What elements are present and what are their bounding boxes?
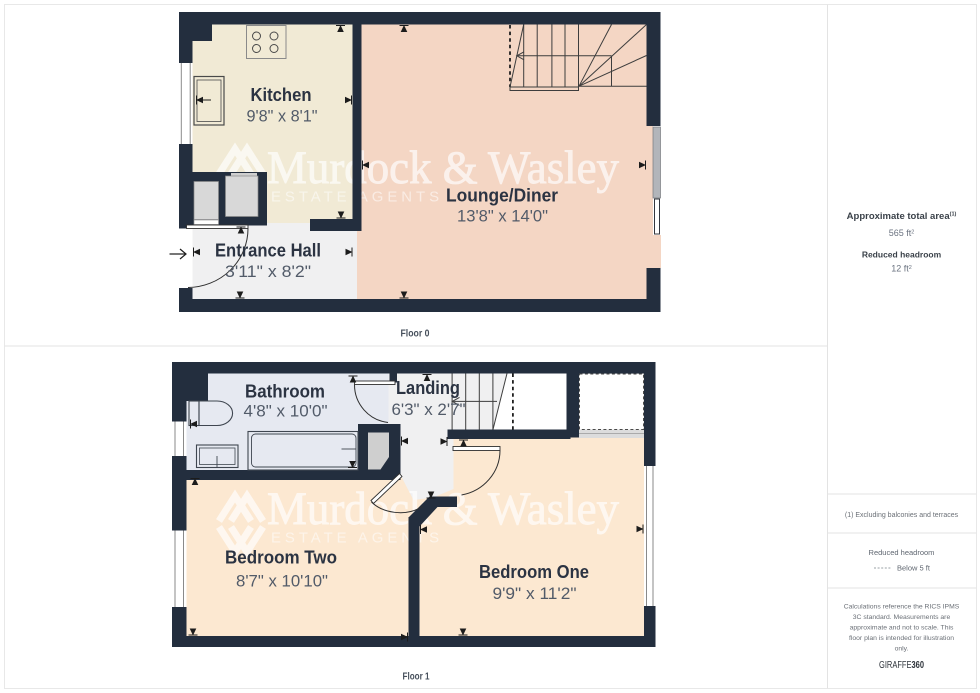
svg-text:Entrance Hall: Entrance Hall — [215, 241, 321, 261]
svg-text:12 ft2: 12 ft2 — [891, 264, 912, 274]
svg-text:9'9" x 11'2": 9'9" x 11'2" — [493, 585, 577, 603]
svg-text:(1) Excluding balconies and te: (1) Excluding balconies and terraces — [845, 512, 959, 519]
svg-text:Murdock & Wasley: Murdock & Wasley — [267, 142, 619, 194]
svg-text:Calculations reference the RIC: Calculations reference the RICS IPMS — [844, 604, 960, 611]
svg-text:565 ft2: 565 ft2 — [889, 228, 915, 238]
svg-text:3'11" x 8'2": 3'11" x 8'2" — [225, 263, 311, 281]
svg-text:Lounge/Diner: Lounge/Diner — [446, 186, 558, 206]
svg-text:Murdock & Wasley: Murdock & Wasley — [267, 483, 619, 535]
svg-text:Bedroom Two: Bedroom Two — [225, 548, 337, 568]
svg-text:Approximate total area(1): Approximate total area(1) — [847, 211, 957, 222]
svg-text:Floor 1: Floor 1 — [403, 671, 430, 683]
svg-text:13'8" x 14'0": 13'8" x 14'0" — [457, 208, 548, 226]
svg-text:Below 5 ft: Below 5 ft — [897, 564, 931, 573]
svg-text:approximate and not to scale.: approximate and not to scale. This — [850, 625, 954, 632]
svg-text:Reduced headroom: Reduced headroom — [862, 250, 942, 260]
svg-text:Bathroom: Bathroom — [245, 382, 325, 402]
svg-text:floor plan is intended for ill: floor plan is intended for illustration — [849, 635, 954, 642]
svg-text:Floor 0: Floor 0 — [401, 328, 430, 340]
svg-text:3C standard. Measurements are: 3C standard. Measurements are — [853, 614, 951, 621]
svg-text:Kitchen: Kitchen — [251, 85, 312, 105]
svg-text:4'8" x 10'0": 4'8" x 10'0" — [244, 403, 328, 421]
svg-text:Reduced headroom: Reduced headroom — [869, 548, 935, 557]
svg-text:only.: only. — [895, 646, 909, 653]
svg-text:6'3" x 2'7": 6'3" x 2'7" — [392, 401, 466, 419]
svg-text:Bedroom One: Bedroom One — [479, 562, 589, 582]
svg-text:GIRAFFE360: GIRAFFE360 — [879, 660, 924, 671]
svg-text:9'8" x 8'1": 9'8" x 8'1" — [247, 108, 318, 126]
svg-text:Landing: Landing — [396, 378, 460, 398]
svg-text:8'7" x 10'10": 8'7" x 10'10" — [236, 573, 328, 591]
